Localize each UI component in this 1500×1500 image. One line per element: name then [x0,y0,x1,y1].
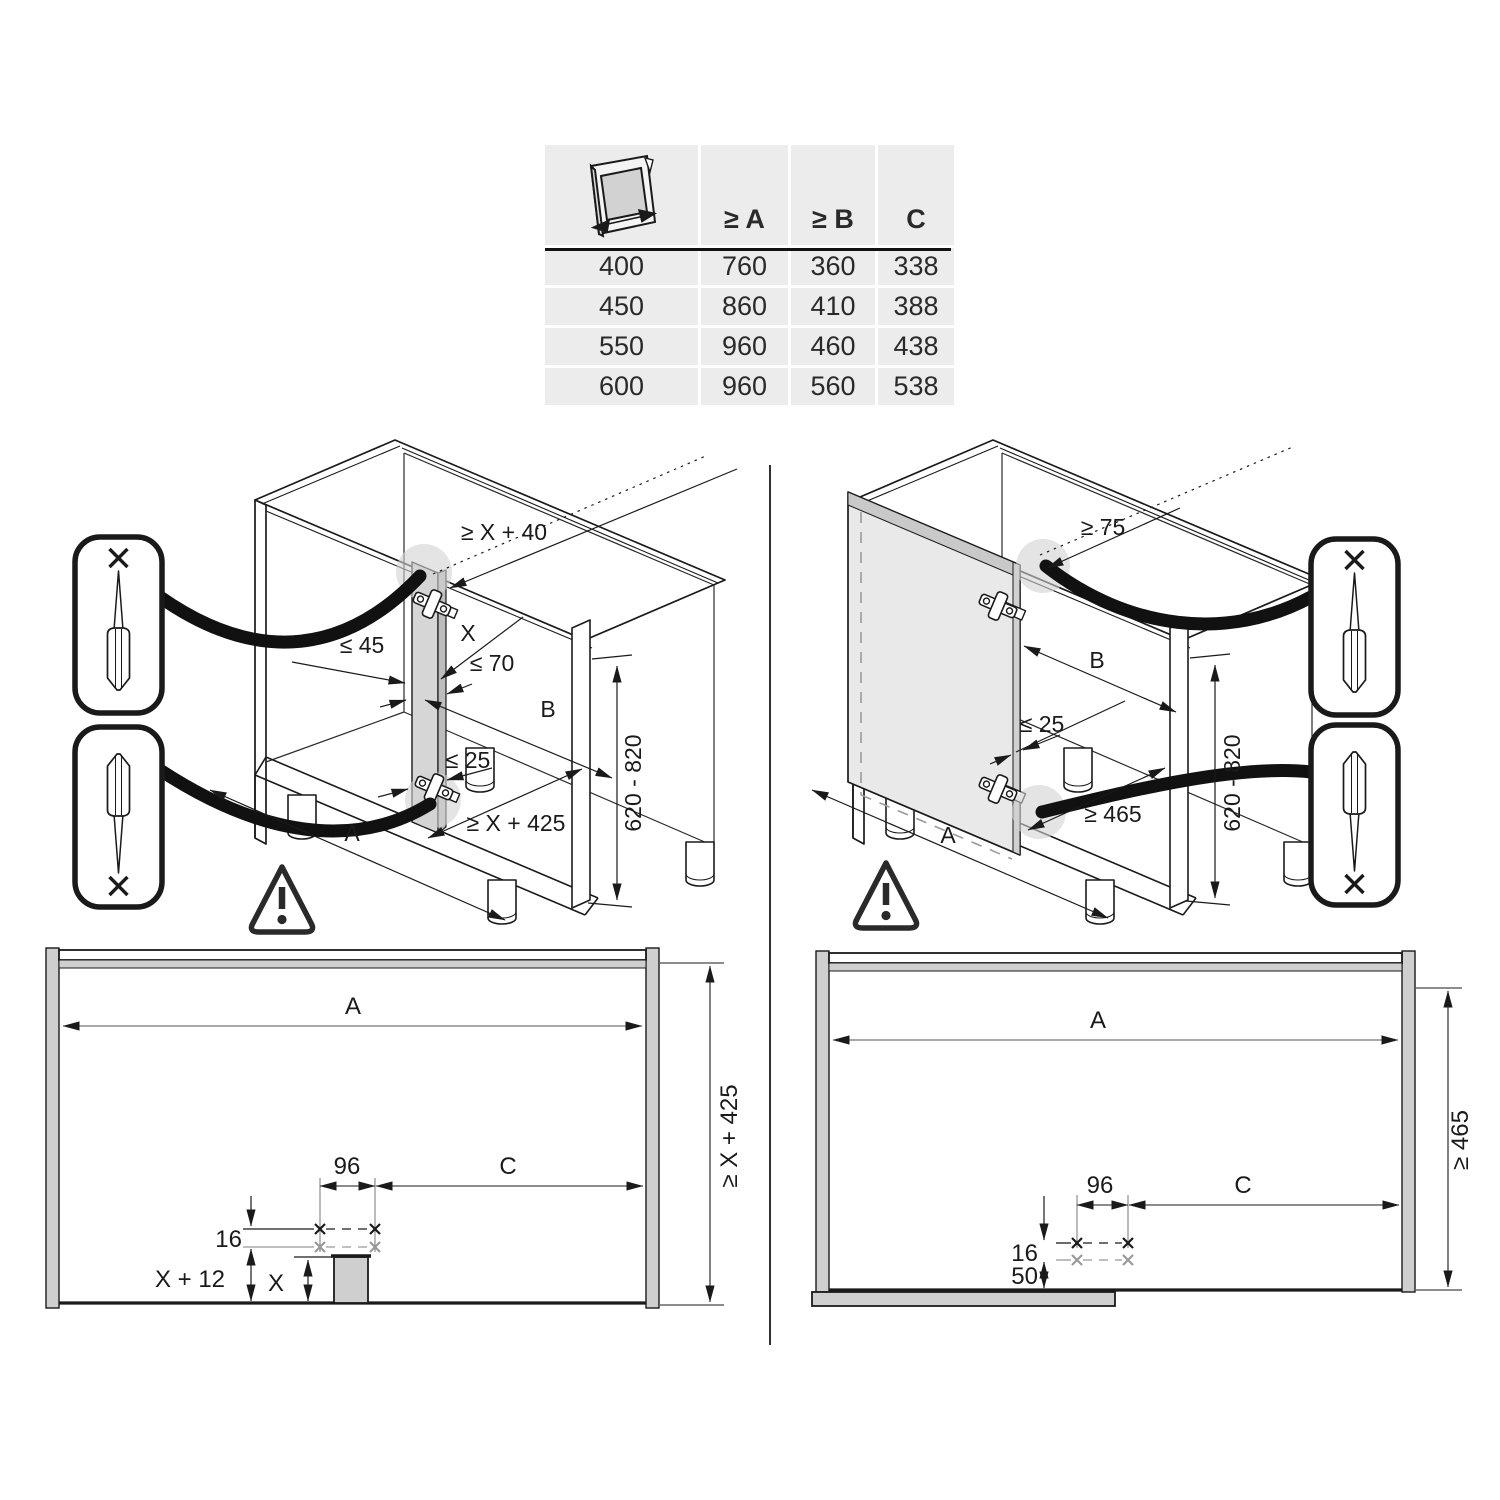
drill-row-upper [243,1224,380,1234]
cabinet-leg [1064,748,1092,792]
door-width-icon [569,148,674,243]
table-cell: 338 [878,248,954,285]
dim-label-25: ≤ 25 [446,747,491,773]
dim-label-a: A [345,993,361,1020]
dim-label-x: X [460,620,475,646]
dim-label-x: X [268,1270,284,1297]
dim-label-a: A [940,822,956,848]
top-rail-edge [829,963,1402,971]
extension-lines [320,1178,375,1252]
table-cell: 560 [791,368,875,405]
table-cell: 460 [791,328,875,365]
dim-label-c: C [499,1153,516,1180]
dim-label-height: ≥ 465 [1447,1110,1474,1170]
awl-callout-bottom [1311,725,1398,905]
table-header-B: ≥ B [791,145,875,245]
side-panel [646,948,659,1308]
table-cell: 538 [878,368,954,405]
right-side-panel [572,620,590,908]
dim-label-height: ≥ X + 425 [716,1084,743,1187]
awl-callout-bottom [75,727,162,907]
drill-row-lower [1056,1255,1133,1265]
dim-label-top-clearance: ≥ X + 40 [461,519,547,545]
right-cabinet-isometric: ≥ 75 B ≤ 25 ≥ 465 A 620 - 820 [812,440,1398,928]
warning-triangle-icon [855,863,916,928]
table-cell: 960 [701,328,788,365]
side-panel [46,948,59,1308]
dim-label-depth: ≥ 465 [1084,801,1141,827]
left-elevation-drawing: A ≥ X + 425 96 C [46,948,743,1308]
size-table: ≥ A ≥ B C 400 760 360 338 450 860 410 38… [545,145,951,405]
side-panel [1402,951,1415,1292]
cabinet-leg [686,842,714,886]
plinth-panel [812,1292,1115,1306]
top-rail-edge [59,960,646,968]
dim-label-a: A [344,820,360,846]
table-cell: 600 [545,368,698,405]
side-panel [816,951,829,1292]
dim-label-70: ≤ 70 [470,650,515,676]
dim-label-x12: X + 12 [155,1266,225,1293]
top-rail [59,950,646,960]
extension-lines [1077,1195,1128,1248]
table-cell: 438 [878,328,954,365]
dim-label-b: B [540,696,555,722]
cabinet-leg [1284,842,1312,886]
table-header-A: ≥ A [701,145,788,245]
drive-unit-block [331,1256,371,1303]
table-cell: 388 [878,288,954,325]
dim-label-50: 50 [1011,1263,1038,1290]
dim-label-25: ≤ 25 [1020,711,1065,737]
dim-label-96: 96 [1087,1172,1114,1199]
dim-label-c: C [1234,1172,1251,1199]
dim-label-b: B [1089,647,1104,673]
cabinet-leg [1086,880,1114,924]
dim-label-height: 620 - 820 [1219,734,1245,831]
drill-row-upper [1056,1238,1133,1248]
dim-label-96: 96 [334,1153,361,1180]
dim-label-height: 620 - 820 [620,734,646,831]
left-cabinet-isometric: ≥ X + 40 X ≤ 70 ≤ 45 B ≤ 25 ≥ X + 425 A … [75,440,737,932]
table-cell: 860 [701,288,788,325]
dim-label-a: A [1090,1007,1106,1034]
dim-label-16: 16 [215,1226,242,1253]
installation-diagram-page: ≥ A ≥ B C 400 760 360 338 450 860 410 38… [0,0,1500,1500]
table-corner-door-icon-cell [545,145,698,245]
table-header-C: C [878,145,954,245]
dim-label-45: ≤ 45 [340,632,385,658]
table-cell: 360 [791,248,875,285]
dim-label-top-clearance: ≥ 75 [1081,514,1126,540]
table-cell: 760 [701,248,788,285]
table-cell: 550 [545,328,698,365]
drill-row-lower [243,1242,380,1252]
table-cell: 410 [791,288,875,325]
dim-label-depth: ≥ X + 425 [467,810,566,836]
cabinet-leg [488,880,516,924]
technical-drawings: ≥ X + 40 X ≤ 70 ≤ 45 B ≤ 25 ≥ X + 425 A … [0,420,1500,1500]
warning-triangle-icon [251,867,312,932]
dim-height-group [660,963,724,1305]
awl-callout-top [75,537,162,713]
awl-callout-top [1311,539,1398,715]
right-side-panel [1170,620,1188,908]
top-rail [829,953,1402,963]
table-cell: 960 [701,368,788,405]
table-cell: 450 [545,288,698,325]
table-cell: 400 [545,248,698,285]
right-elevation-drawing: A ≥ 465 96 C [812,951,1474,1306]
table-header-rule [545,248,951,251]
